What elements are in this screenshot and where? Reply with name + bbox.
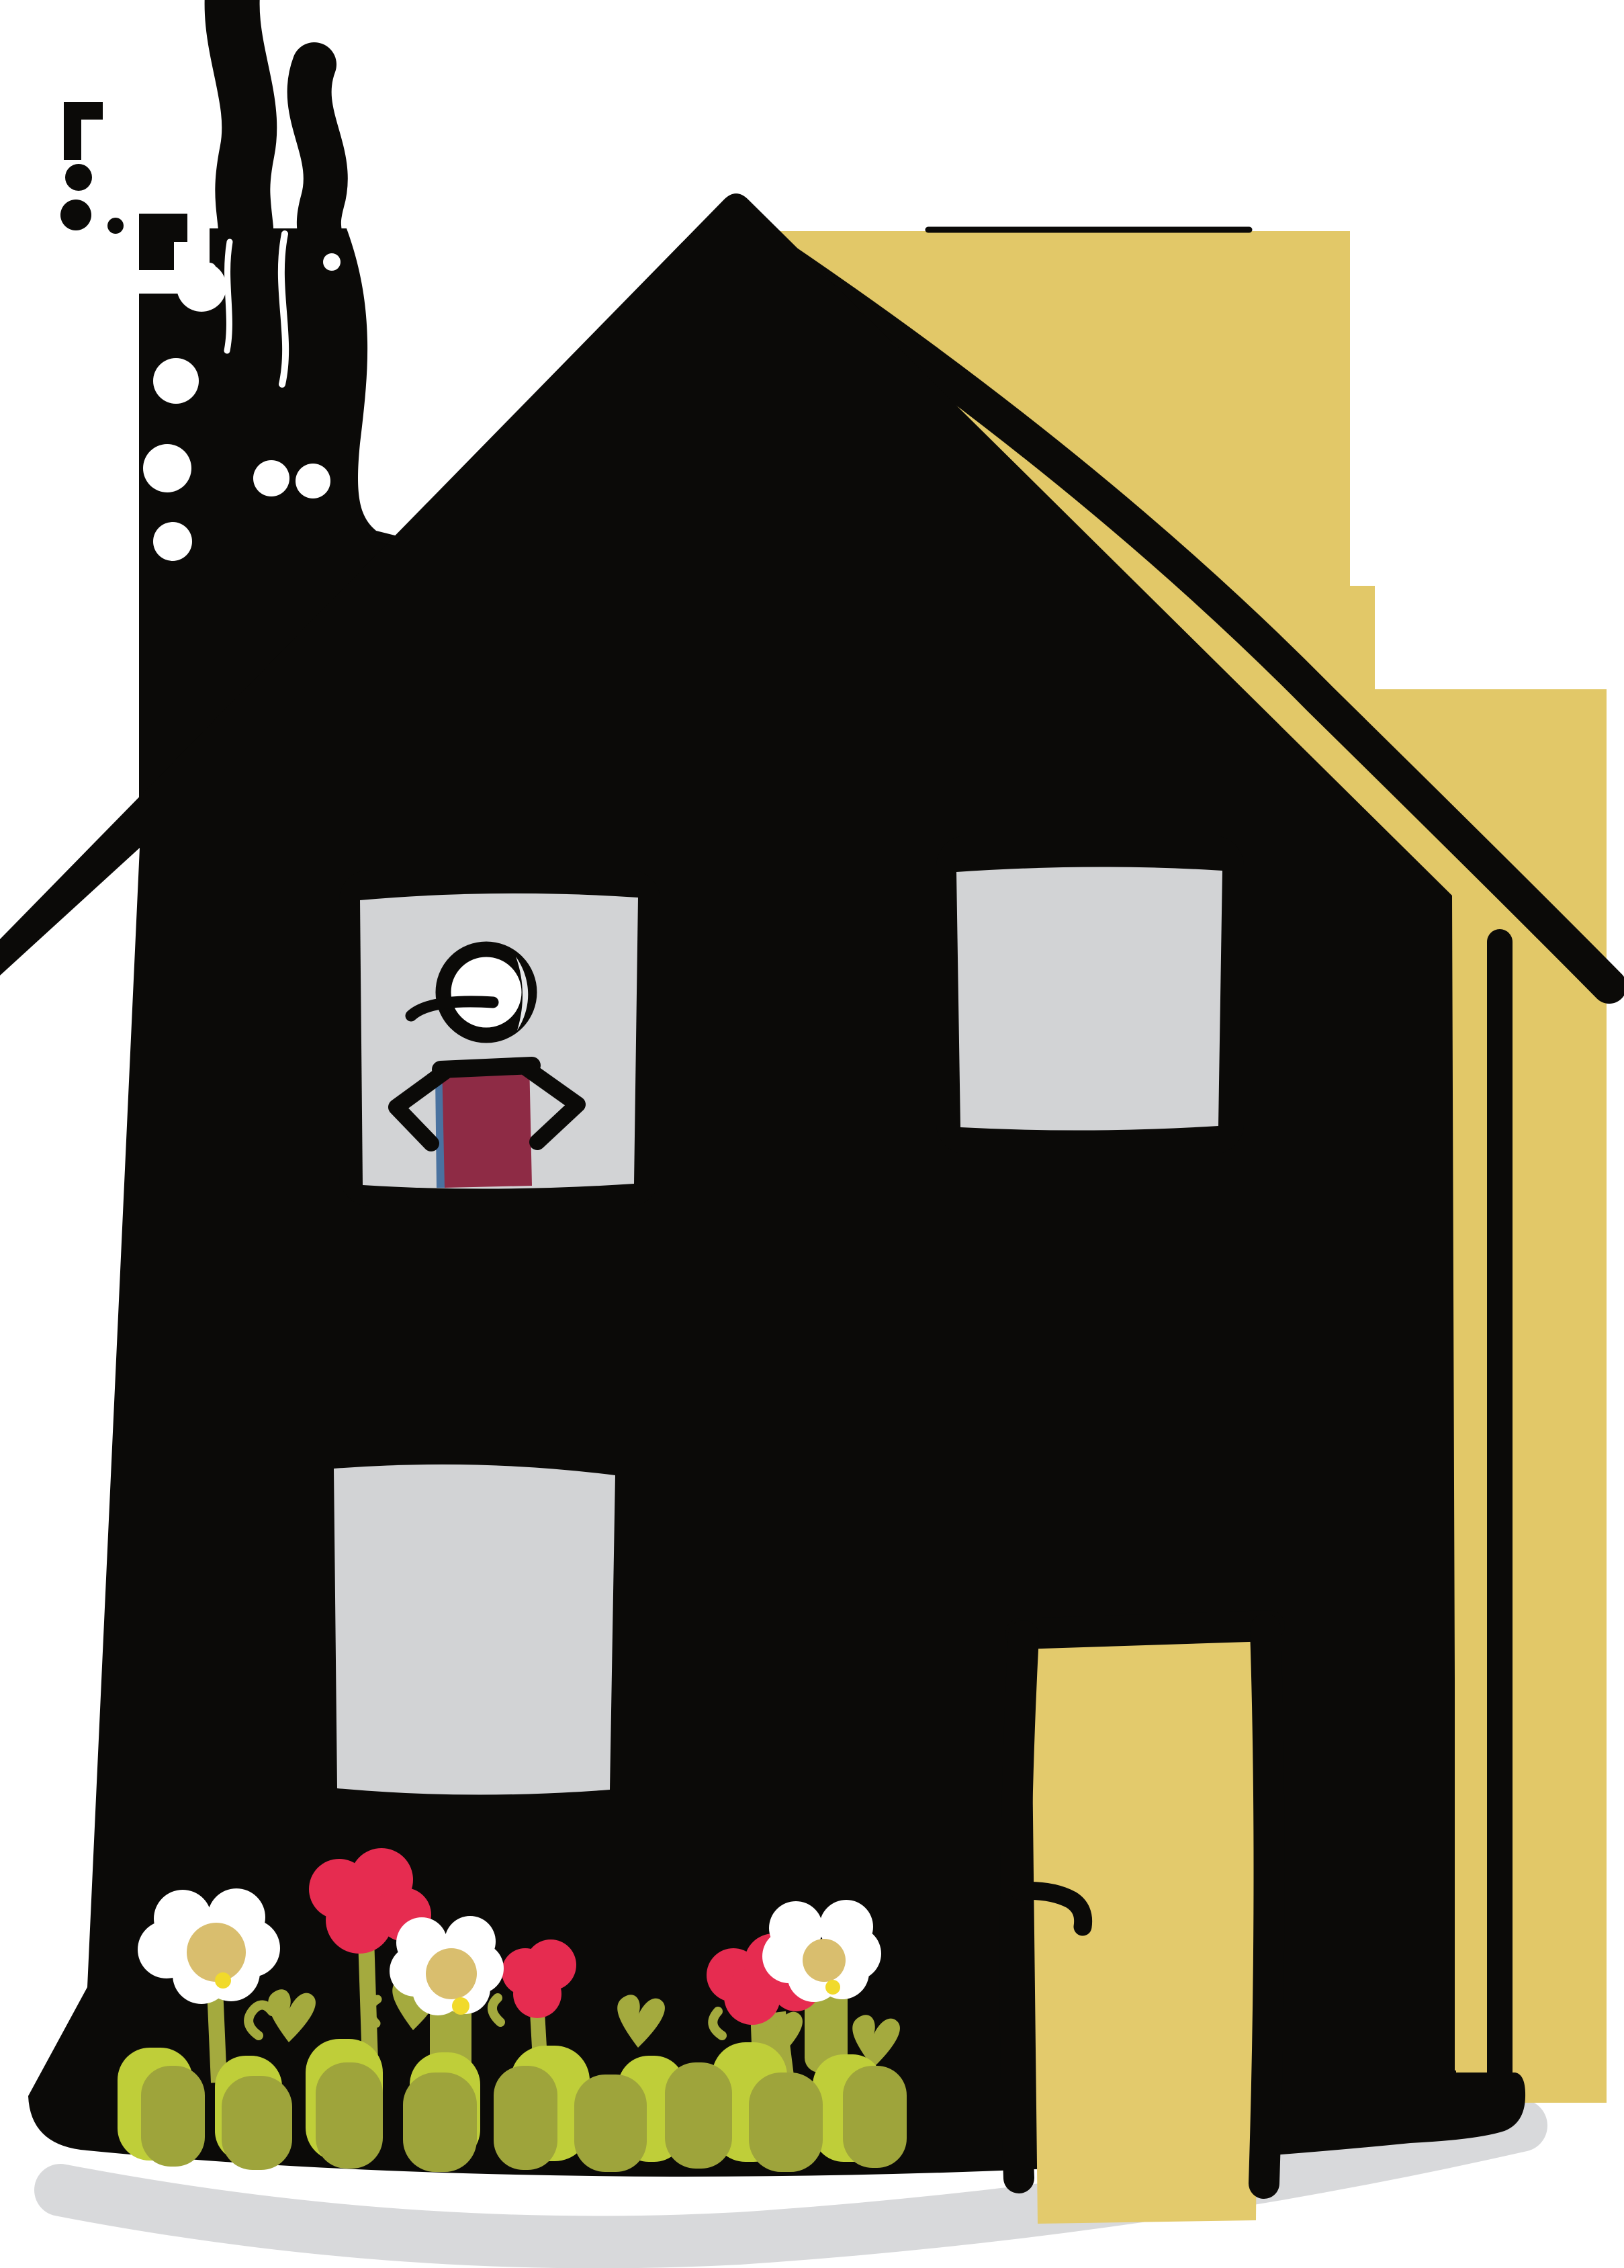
- door-frame-left: [1016, 1636, 1024, 2178]
- daisy-center-dot: [825, 1980, 840, 1995]
- window-pane: [956, 867, 1222, 1130]
- daisy-center-dot: [215, 1972, 231, 1989]
- smoke-seam-1: [281, 234, 285, 384]
- person-head: [443, 949, 529, 1035]
- grass-blob: [403, 2073, 477, 2172]
- daisy-center: [187, 1923, 246, 1982]
- chimney-cap-block: [139, 214, 187, 270]
- upper-left-window: [339, 870, 660, 1206]
- smoke-dot-2: [60, 200, 91, 230]
- smoke-trail-right: [310, 64, 326, 242]
- smoke-hole-8: [203, 263, 216, 276]
- door-frame-right: [1264, 1629, 1269, 2183]
- smoke-hole-2: [153, 358, 199, 404]
- red-petal: [513, 1970, 561, 2018]
- grass-blob: [494, 2066, 557, 2170]
- daisy-center: [426, 1948, 477, 1999]
- person-shoulders: [441, 1065, 532, 1070]
- daisy-center: [803, 1939, 846, 1982]
- stem: [215, 1989, 219, 2083]
- smoke-bracket-shape: [64, 102, 103, 160]
- grass-blob: [665, 2062, 732, 2169]
- smoke-dot-3: [107, 218, 124, 234]
- front-door: [1016, 1626, 1269, 2224]
- door-panel: [1031, 1638, 1261, 2224]
- grass-blob: [222, 2076, 292, 2170]
- smoke-seam-2: [227, 242, 230, 351]
- door-frame-top: [1021, 1626, 1269, 1634]
- smoke-hole-7: [323, 253, 341, 271]
- house-illustration: [0, 0, 1624, 2268]
- smoke-hole-1: [177, 262, 226, 312]
- smoke-hole-3: [143, 444, 191, 492]
- smoke-dot-1: [65, 164, 92, 191]
- person-shirt: [442, 1060, 532, 1188]
- smoke-hole-4: [153, 522, 192, 561]
- grass-blob: [749, 2073, 823, 2172]
- upper-right-window: [936, 836, 1244, 1154]
- daisy-center-dot: [452, 1997, 469, 2015]
- grass-front-row: [141, 2062, 907, 2172]
- right-wall-gap: [1455, 920, 1486, 2070]
- lower-left-window: [334, 1465, 615, 1795]
- grass-blob: [574, 2075, 647, 2172]
- grass-blob: [843, 2066, 907, 2168]
- grass-blob: [141, 2066, 205, 2167]
- grass-blob: [316, 2062, 383, 2169]
- smoke-hole-5: [253, 460, 289, 496]
- smoke-hole-6: [296, 464, 330, 498]
- illustration-stage: [0, 0, 1624, 2268]
- smoke-trail-left: [232, 0, 250, 228]
